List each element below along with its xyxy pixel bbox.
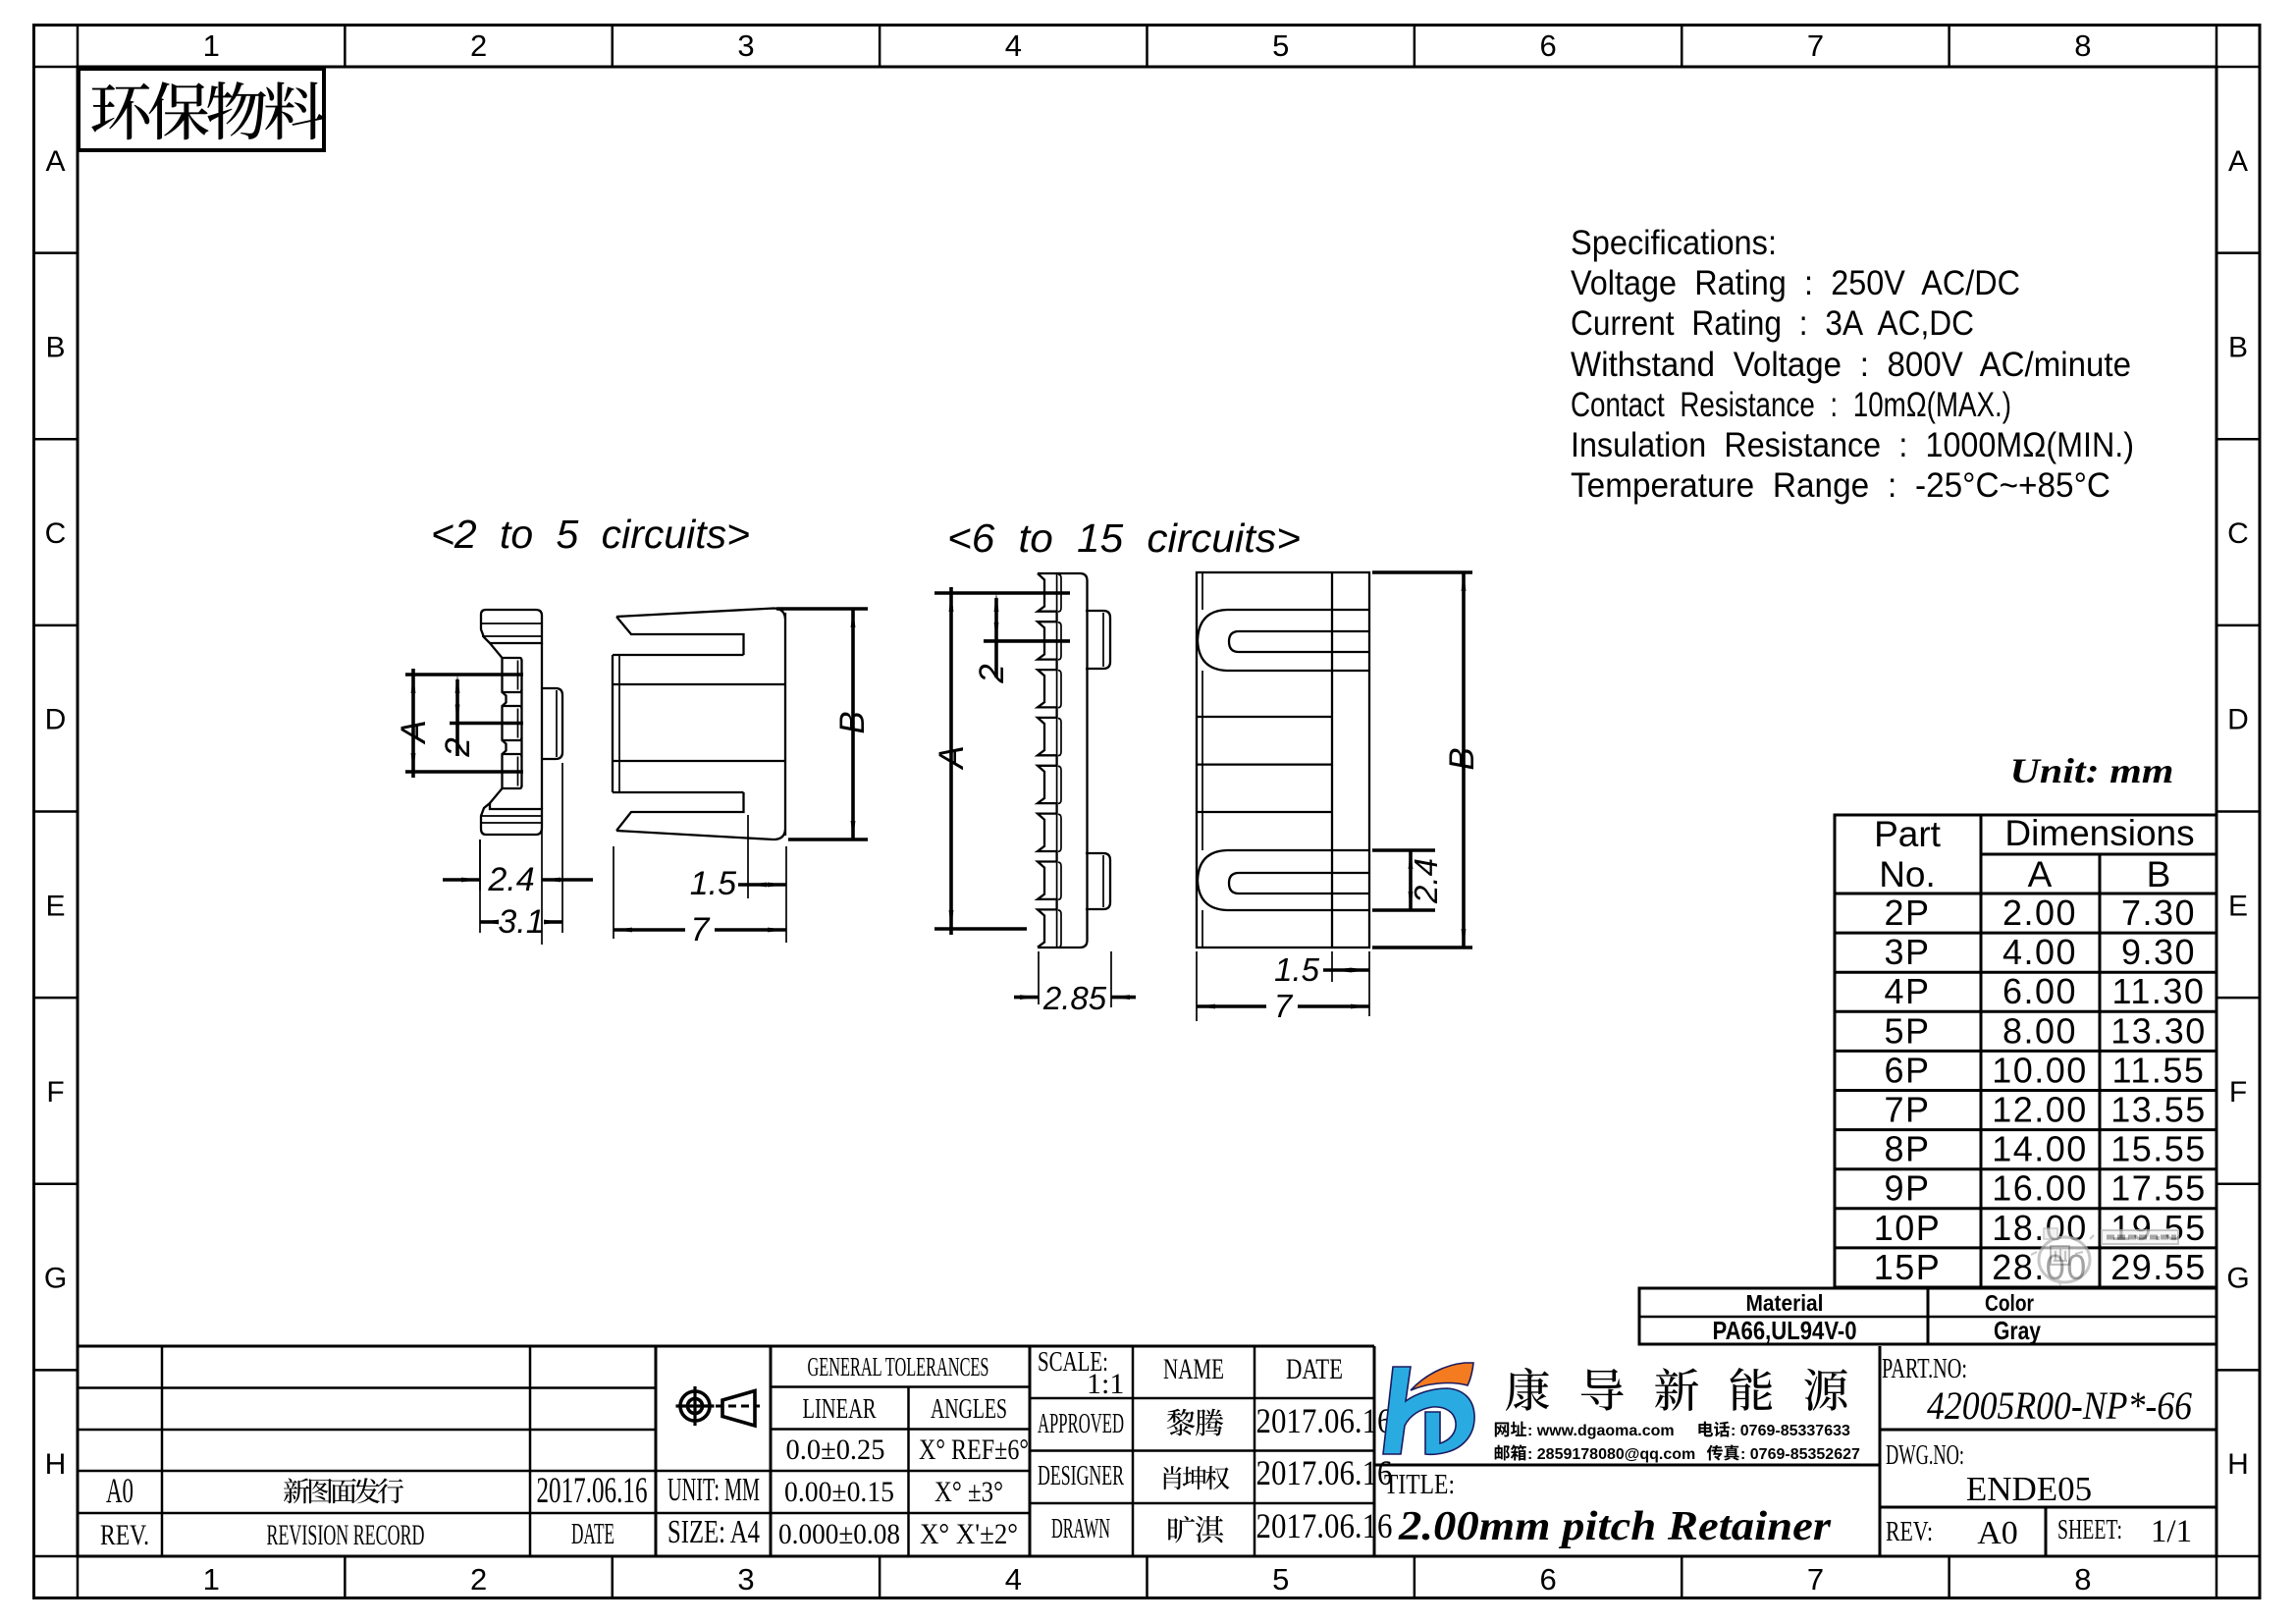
svg-text:E: E	[2228, 890, 2248, 922]
svg-text:Unit: mm: Unit: mm	[2010, 751, 2174, 790]
svg-text:7.30: 7.30	[2121, 893, 2196, 933]
svg-text:7P: 7P	[1884, 1090, 1930, 1130]
svg-text:7: 7	[1807, 28, 1824, 63]
svg-text:2: 2	[973, 664, 1011, 683]
svg-text:2.85: 2.85	[1042, 980, 1107, 1016]
svg-text:5: 5	[1272, 28, 1289, 63]
svg-text:Withstand Voltage : 800V AC/mi: Withstand Voltage : 800V AC/minute	[1571, 346, 2131, 384]
svg-text:Part: Part	[1874, 814, 1942, 854]
svg-text:REVISION RECORD: REVISION RECORD	[267, 1519, 425, 1551]
svg-text:14.00: 14.00	[1992, 1129, 2088, 1169]
svg-text:9.30: 9.30	[2121, 932, 2196, 972]
svg-text:: 2859178080@qq.com: : 2859178080@qq.com	[1527, 1446, 1695, 1463]
svg-text:B: B	[2147, 854, 2171, 894]
svg-text:X° X'±2°: X° X'±2°	[920, 1518, 1018, 1550]
svg-text:6.00: 6.00	[2002, 971, 2077, 1011]
svg-text:REV:: REV:	[1886, 1517, 1933, 1547]
svg-text:5P: 5P	[1884, 1010, 1930, 1051]
svg-text:2.00: 2.00	[2002, 893, 2077, 933]
svg-text:0.000±0.08: 0.000±0.08	[778, 1518, 900, 1550]
svg-text:APPROVED: APPROVED	[1038, 1409, 1124, 1439]
svg-text:2P: 2P	[1884, 893, 1930, 933]
svg-text:X° REF±6°: X° REF±6°	[919, 1434, 1029, 1466]
svg-text:Voltage Rating : 250V AC/DC: Voltage Rating : 250V AC/DC	[1571, 264, 2020, 302]
svg-text:10.00: 10.00	[1992, 1050, 2088, 1090]
svg-text:A: A	[2228, 145, 2248, 178]
svg-text:ANGLES: ANGLES	[931, 1393, 1007, 1425]
svg-text:Temperature Range : -25°C~+85°: Temperature Range : -25°C~+85°C	[1571, 466, 2110, 505]
svg-text:0.0±0.25: 0.0±0.25	[786, 1434, 885, 1466]
svg-text:DESIGNER: DESIGNER	[1038, 1461, 1124, 1491]
svg-text:A: A	[933, 745, 971, 770]
svg-text:3.1: 3.1	[498, 903, 544, 941]
svg-text:0.00±0.15: 0.00±0.15	[784, 1476, 894, 1508]
svg-text:42005R00-NP*-66: 42005R00-NP*-66	[1927, 1383, 2192, 1428]
svg-text:DRAWN: DRAWN	[1051, 1514, 1110, 1544]
svg-text:A0: A0	[1977, 1515, 2018, 1551]
svg-text:4P: 4P	[1884, 971, 1930, 1011]
svg-text:NAME: NAME	[1163, 1353, 1224, 1385]
svg-text:5: 5	[1272, 1562, 1289, 1597]
svg-text:B: B	[1443, 747, 1481, 770]
svg-text:DATE: DATE	[1286, 1353, 1343, 1385]
svg-text:13.30: 13.30	[2110, 1010, 2207, 1051]
svg-text:Material: Material	[1746, 1290, 1824, 1316]
svg-text:LINEAR: LINEAR	[803, 1393, 877, 1425]
svg-text:2.4: 2.4	[487, 861, 534, 898]
svg-text:F: F	[46, 1076, 64, 1109]
svg-text:G: G	[2226, 1263, 2249, 1295]
svg-text:Color: Color	[1985, 1290, 2034, 1316]
svg-text:A0: A0	[106, 1471, 133, 1510]
svg-text:Current Rating : 3A AC,DC: Current Rating : 3A AC,DC	[1571, 304, 1974, 343]
svg-text:9P: 9P	[1884, 1168, 1930, 1209]
svg-text:REV.: REV.	[100, 1519, 149, 1551]
svg-text:2.4: 2.4	[1408, 858, 1444, 904]
svg-text:SHEET:: SHEET:	[2057, 1515, 2122, 1545]
svg-text:4: 4	[1005, 1562, 1022, 1597]
svg-text:A: A	[395, 720, 433, 744]
svg-text:6P: 6P	[1884, 1050, 1930, 1090]
svg-text:DWG.NO:: DWG.NO:	[1886, 1440, 1964, 1471]
svg-text:12.00: 12.00	[1992, 1090, 2088, 1130]
svg-text:15.55: 15.55	[2110, 1129, 2207, 1169]
svg-text:1: 1	[203, 1562, 220, 1597]
svg-text:6: 6	[1539, 28, 1556, 63]
svg-text:2: 2	[470, 28, 487, 63]
svg-text:D: D	[2227, 704, 2249, 736]
svg-text:A: A	[45, 145, 65, 178]
svg-text:1/1: 1/1	[2151, 1514, 2192, 1549]
svg-text:X° ±3°: X° ±3°	[934, 1476, 1003, 1508]
svg-text:2017.06.16: 2017.06.16	[1256, 1453, 1393, 1492]
svg-text:E: E	[45, 890, 65, 922]
svg-text:GENERAL TOLERANCES: GENERAL TOLERANCES	[808, 1352, 989, 1381]
svg-text:8.00: 8.00	[2002, 1010, 2077, 1051]
svg-text:29.55: 29.55	[2110, 1247, 2207, 1287]
svg-text:C: C	[2227, 517, 2249, 550]
svg-text:8: 8	[2074, 1562, 2091, 1597]
svg-text:2: 2	[470, 1562, 487, 1597]
svg-text:Dimensions: Dimensions	[2004, 813, 2194, 853]
svg-text:ENDE05: ENDE05	[1966, 1470, 2092, 1508]
svg-text:6: 6	[1539, 1562, 1556, 1597]
svg-text:2017.06.16: 2017.06.16	[537, 1471, 648, 1511]
svg-text:3P: 3P	[1884, 932, 1930, 972]
svg-text:11.30: 11.30	[2112, 971, 2206, 1011]
svg-text:4.00: 4.00	[2002, 932, 2077, 972]
svg-text:UNIT: MM: UNIT: MM	[667, 1472, 760, 1508]
svg-text:1: 1	[203, 28, 220, 63]
svg-text:8: 8	[2074, 28, 2091, 63]
svg-text:B: B	[45, 331, 65, 363]
svg-text:: www.dgaoma.com: : www.dgaoma.com	[1527, 1423, 1675, 1439]
svg-text:No.: No.	[1879, 854, 1936, 894]
svg-text:TITLE:: TITLE:	[1384, 1470, 1455, 1500]
svg-text:F: F	[2229, 1076, 2247, 1109]
svg-text:16.00: 16.00	[1992, 1168, 2088, 1209]
svg-text:7: 7	[1274, 988, 1294, 1024]
svg-text:10P: 10P	[1874, 1208, 1942, 1248]
svg-text:: 0769-85337633: : 0769-85337633	[1731, 1423, 1850, 1439]
svg-text:G: G	[44, 1263, 67, 1295]
svg-text:3: 3	[737, 1562, 754, 1597]
svg-text:1.5: 1.5	[690, 865, 736, 902]
svg-text:2: 2	[439, 737, 477, 757]
svg-text:15P: 15P	[1874, 1247, 1942, 1287]
svg-text:3: 3	[737, 28, 754, 63]
svg-text:Gray: Gray	[1994, 1316, 2041, 1345]
svg-text:7: 7	[691, 911, 711, 948]
svg-text:B: B	[2228, 331, 2248, 363]
svg-text:1:1: 1:1	[1087, 1368, 1124, 1400]
svg-text:H: H	[2227, 1448, 2249, 1481]
svg-text:2017.06.16: 2017.06.16	[1256, 1401, 1393, 1440]
svg-text:2017.06.16: 2017.06.16	[1256, 1506, 1393, 1545]
svg-text:7: 7	[1807, 1562, 1824, 1597]
svg-text:H: H	[45, 1448, 67, 1481]
svg-text:DATE: DATE	[571, 1516, 614, 1550]
svg-text:Insulation Resistance : 1000MΩ: Insulation Resistance : 1000MΩ(MIN.)	[1571, 426, 2134, 464]
svg-text:C: C	[45, 517, 67, 550]
svg-text:D: D	[45, 704, 67, 736]
svg-text:PA66,UL94V-0: PA66,UL94V-0	[1713, 1316, 1857, 1345]
svg-text:<2 to 5 circuits>: <2 to 5 circuits>	[431, 512, 750, 557]
svg-text:17.55: 17.55	[2110, 1168, 2207, 1209]
svg-text:Specifications:: Specifications:	[1571, 224, 1777, 262]
svg-text:Contact Resistance : 10mΩ(MAX.: Contact Resistance : 10mΩ(MAX.)	[1571, 386, 2011, 424]
svg-text:1.5: 1.5	[1274, 951, 1320, 988]
svg-text:A: A	[2028, 854, 2053, 894]
svg-text:8P: 8P	[1884, 1129, 1930, 1169]
svg-text:11.55: 11.55	[2112, 1050, 2206, 1090]
svg-text:B: B	[833, 711, 872, 733]
svg-text:SIZE: A4: SIZE: A4	[667, 1514, 760, 1550]
svg-text:13.55: 13.55	[2110, 1090, 2207, 1130]
svg-text:2.00mm pitch Retainer: 2.00mm pitch Retainer	[1398, 1504, 1832, 1549]
svg-text:<6 to 15 circuits>: <6 to 15 circuits>	[947, 515, 1301, 561]
svg-text:4: 4	[1005, 28, 1022, 63]
svg-text:: 0769-85352627: : 0769-85352627	[1740, 1446, 1860, 1463]
svg-text:PART.NO:: PART.NO:	[1882, 1354, 1967, 1384]
